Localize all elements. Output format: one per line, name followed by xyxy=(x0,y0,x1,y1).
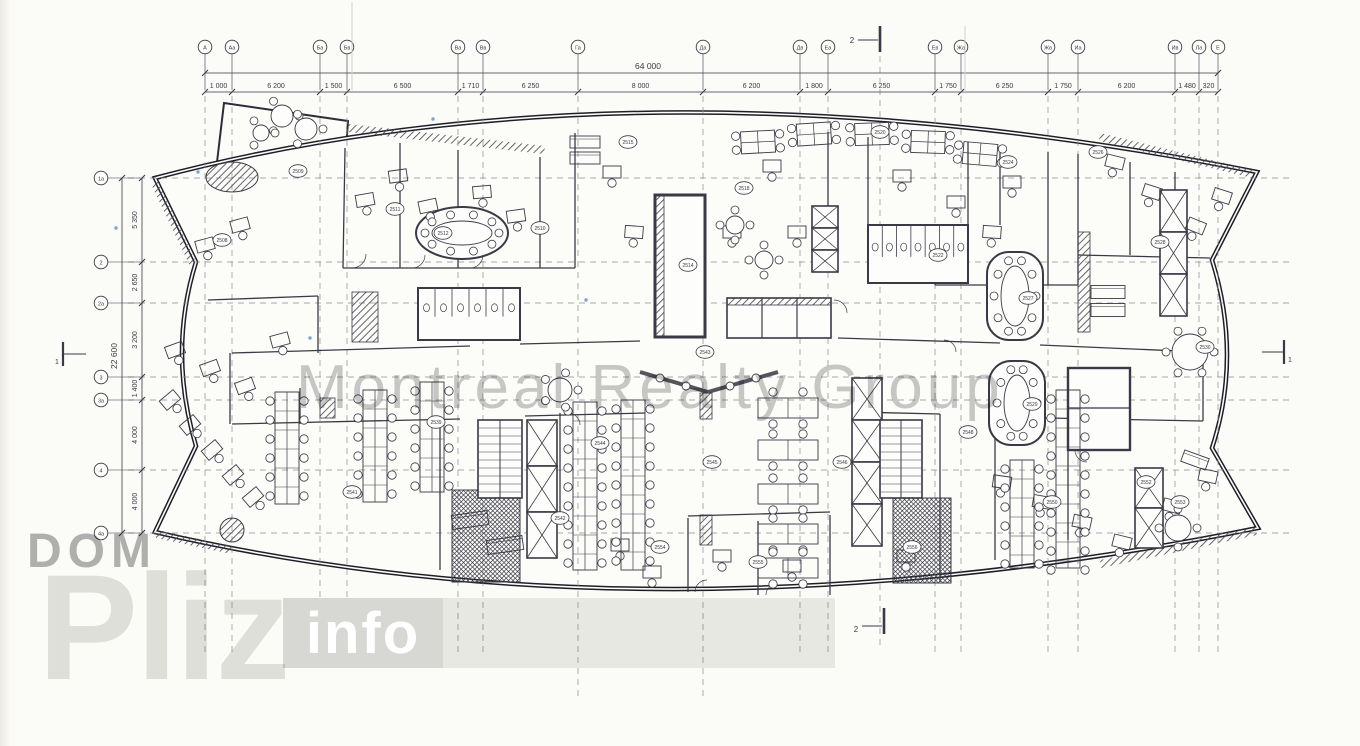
grid-bubble-column-label: Аа xyxy=(229,46,237,52)
watermark-logo-info: info xyxy=(283,598,443,668)
room-tag-label: 2515 xyxy=(622,140,633,146)
grid-bubble-column-label: А xyxy=(203,46,207,52)
grid-bubble-column-label: Жв xyxy=(1044,46,1052,52)
room-tag-label: 2552 xyxy=(1140,480,1151,486)
blue-speck xyxy=(308,336,311,339)
column-spacing-label: 6 200 xyxy=(1118,83,1136,90)
room-tag-label: 2514 xyxy=(682,263,693,269)
column-spacing-label: 1 500 xyxy=(325,83,343,90)
watermark-realty-group: Montreal Realty Group xyxy=(296,352,1004,423)
row-spacing-label: 4 000 xyxy=(132,493,139,511)
room-tag-label: 2554 xyxy=(654,545,665,551)
blue-speck xyxy=(196,170,199,173)
grid-bubble-column-label: Ев xyxy=(932,46,939,52)
room-tag-label: 2526 xyxy=(1092,150,1103,156)
grid-bubble-column-label: Ба xyxy=(317,46,325,52)
grid-bubble-column-label: Дв xyxy=(797,46,804,52)
grid-bubble-row-label: 2 xyxy=(99,260,102,266)
overall-height-label: 22 600 xyxy=(109,343,119,369)
room-tag-label: 2528 xyxy=(1154,240,1165,246)
column-spacing-label: 6 500 xyxy=(394,83,412,90)
room-tag-label: 2548 xyxy=(962,430,973,436)
room-tag-label: 2524 xyxy=(1002,160,1013,166)
room-tag-label: 2542 xyxy=(554,516,565,522)
scanned-floor-plan-page: 64 0001 0006 2001 5006 5001 7106 2508 00… xyxy=(0,0,1360,746)
hatched-column xyxy=(220,518,244,542)
row-spacing-label: 4 000 xyxy=(132,426,139,444)
column-spacing-label: 1 480 xyxy=(1178,83,1196,90)
blue-speck xyxy=(114,226,117,229)
blue-speck xyxy=(584,298,587,301)
watermark-logo-pliz: Pliz xyxy=(38,552,288,702)
room-tag-label: 2509 xyxy=(292,169,303,175)
row-spacing-label: 2 650 xyxy=(132,274,139,292)
room-tag-label: 2555 xyxy=(752,560,763,566)
room-tag-label: 2545 xyxy=(706,460,717,466)
floor-crosshatch xyxy=(452,490,520,582)
room-tag-label: 2546 xyxy=(836,460,847,466)
grid-bubble-column-label: Ла xyxy=(1196,46,1204,52)
floor-crosshatch xyxy=(893,498,951,583)
column-spacing-label: 6 250 xyxy=(522,83,540,90)
grid-bubble-row-label: 4 xyxy=(99,468,102,474)
section-marker-left: 1 xyxy=(55,359,59,366)
section-marker-right: 1 xyxy=(1288,357,1292,364)
hatched-wall xyxy=(655,195,664,337)
bench-desk-row xyxy=(612,400,654,570)
grid-bubble-column-label: Да xyxy=(700,46,708,52)
grid-bubble-row-label: 3 xyxy=(99,375,102,381)
grid-bubble-column-label: Ив xyxy=(1172,46,1179,52)
room-tag-label: 2508 xyxy=(216,238,227,244)
row-spacing-label: 5 350 xyxy=(132,211,139,229)
toilet-block xyxy=(868,225,968,283)
room-tag-label: 2520 xyxy=(874,130,885,136)
scan-edge-shadow xyxy=(0,0,10,746)
grid-bubble-row-label: 3а xyxy=(98,398,105,404)
room-tag-label: 2556 xyxy=(906,545,917,551)
column-spacing-label: 1 750 xyxy=(1054,83,1072,90)
overall-width-label: 64 000 xyxy=(635,61,661,71)
grid-bubble-column-label: Ва xyxy=(455,46,463,52)
blue-speck xyxy=(431,117,434,120)
column-spacing-label: 6 200 xyxy=(267,83,285,90)
column-spacing-label: 1 710 xyxy=(462,83,480,90)
room-tag-label: 2527 xyxy=(1022,296,1033,302)
row-spacing-label: 1 400 xyxy=(132,380,139,398)
grid-bubble-row-label: 1а xyxy=(98,176,105,182)
hatched-wall xyxy=(1078,232,1090,332)
column-spacing-label: 1 000 xyxy=(210,83,228,90)
room-tag-label: 2512 xyxy=(437,231,448,237)
column-spacing-label: 6 200 xyxy=(743,83,761,90)
grid-bubble-column-label: Еа xyxy=(825,46,833,52)
section-marker-top: 2 xyxy=(850,36,855,45)
room-tag-label: 2530 xyxy=(1199,345,1210,351)
column-spacing-label: 1 750 xyxy=(939,83,957,90)
hatched-wall xyxy=(352,292,378,342)
room-tag-label: 2518 xyxy=(738,186,749,192)
column-spacing-label: 320 xyxy=(1203,83,1215,90)
room-tag-label: 2511 xyxy=(390,207,401,213)
row-spacing-label: 3 200 xyxy=(132,331,139,349)
grid-bubble-column-label: Га xyxy=(575,46,582,52)
hatched-wall xyxy=(727,298,831,305)
room-tag-label: 2550 xyxy=(1046,500,1057,506)
room-tag-label: 2544 xyxy=(594,441,605,447)
room-tag-label: 2510 xyxy=(534,226,545,232)
grid-bubble-column-label: Вв xyxy=(480,46,487,52)
room-tag-label: 2522 xyxy=(932,253,943,259)
room-tag-label: 2553 xyxy=(1174,500,1185,506)
grid-bubble-column-label: Е xyxy=(1216,46,1220,52)
hatched-patch xyxy=(206,162,258,192)
grid-bubble-column-label: Бв xyxy=(344,46,351,52)
room-tag-label: 2541 xyxy=(346,490,357,496)
section-marker-bottom: 2 xyxy=(854,625,859,634)
column-spacing-label: 8 000 xyxy=(632,83,650,90)
bench-desk-row xyxy=(564,402,606,570)
grid-bubble-row-label: 2а xyxy=(98,301,105,307)
column-spacing-label: 6 250 xyxy=(996,83,1014,90)
hatched-wall xyxy=(700,515,712,545)
room-tag-label: 2529 xyxy=(1026,402,1037,408)
column-spacing-label: 6 250 xyxy=(873,83,891,90)
column-spacing-label: 1 800 xyxy=(805,83,823,90)
grid-bubble-column-label: Иа xyxy=(1074,46,1082,52)
